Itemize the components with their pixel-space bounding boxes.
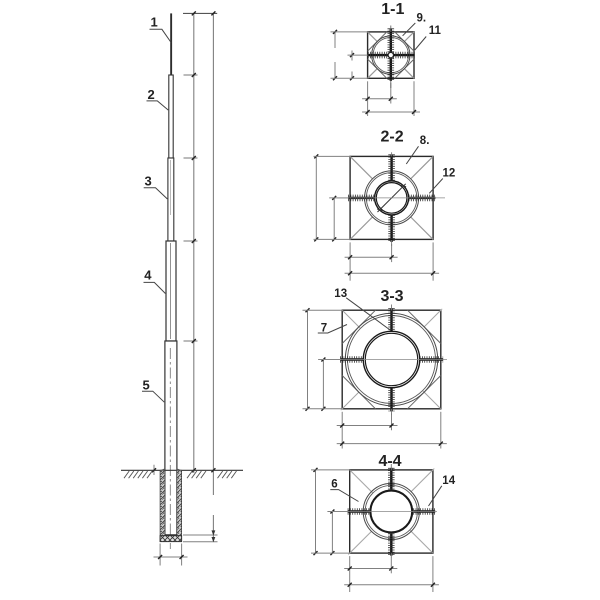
svg-text:6: 6 xyxy=(331,479,337,491)
svg-text:4-4: 4-4 xyxy=(378,453,401,470)
svg-text:3-3: 3-3 xyxy=(380,288,403,305)
svg-text:1: 1 xyxy=(151,15,158,30)
svg-text:1-1: 1-1 xyxy=(381,1,404,18)
svg-text:12: 12 xyxy=(443,168,456,180)
svg-text:9.: 9. xyxy=(417,13,427,25)
svg-text:3: 3 xyxy=(145,173,152,188)
svg-text:11: 11 xyxy=(429,25,442,37)
svg-text:2-2: 2-2 xyxy=(381,128,404,145)
svg-text:2: 2 xyxy=(148,87,155,102)
svg-text:4: 4 xyxy=(144,268,152,283)
svg-text:13: 13 xyxy=(334,288,347,300)
svg-text:14: 14 xyxy=(442,475,455,487)
svg-text:5: 5 xyxy=(143,378,150,393)
svg-text:8.: 8. xyxy=(420,135,430,147)
